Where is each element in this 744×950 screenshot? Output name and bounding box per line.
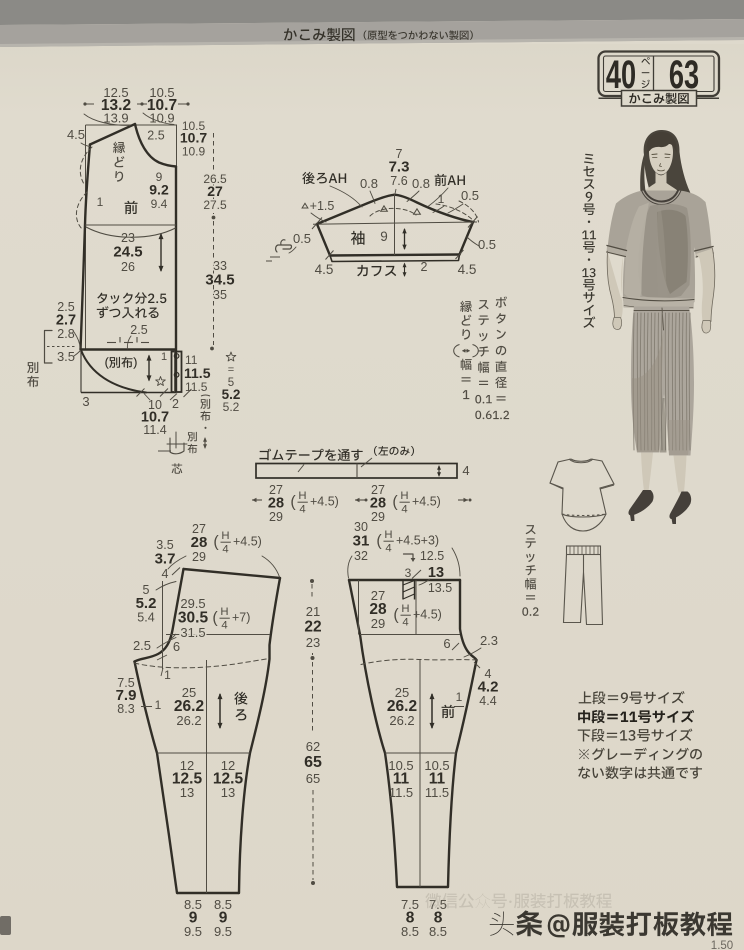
svg-text:1: 1: [155, 698, 162, 712]
svg-text:27: 27: [207, 183, 223, 199]
svg-text:4.5: 4.5: [67, 127, 85, 142]
svg-text:8.5: 8.5: [401, 924, 419, 939]
svg-text:13: 13: [180, 785, 194, 800]
svg-text:32: 32: [354, 549, 368, 563]
svg-text:13: 13: [221, 785, 235, 800]
svg-text:24.5: 24.5: [113, 244, 142, 261]
svg-text:29: 29: [269, 510, 283, 524]
svg-text:(: (: [212, 610, 218, 627]
svg-text:9.2: 9.2: [149, 182, 169, 198]
svg-text:4: 4: [299, 504, 305, 516]
svg-text:9: 9: [380, 229, 388, 244]
svg-text:7.3: 7.3: [389, 159, 410, 176]
svg-text:H: H: [298, 490, 306, 502]
svg-text:9.5: 9.5: [184, 924, 202, 939]
svg-text:11.5: 11.5: [184, 365, 211, 381]
svg-text:2.5: 2.5: [147, 129, 164, 143]
svg-text:6: 6: [173, 639, 180, 654]
svg-text:22: 22: [304, 619, 321, 636]
svg-text:4.5: 4.5: [458, 262, 477, 277]
svg-text:65: 65: [304, 754, 322, 771]
svg-text:8.5: 8.5: [429, 924, 447, 939]
svg-text:+1.5: +1.5: [310, 199, 335, 213]
svg-text:10.9: 10.9: [182, 144, 206, 158]
svg-text:2.3: 2.3: [480, 633, 498, 648]
svg-text:35: 35: [213, 288, 227, 302]
svg-text:29: 29: [371, 510, 385, 524]
svg-text:34.5: 34.5: [205, 272, 234, 289]
svg-text:(: (: [376, 533, 382, 550]
svg-text:7.6: 7.6: [390, 174, 407, 188]
svg-text:+4.5): +4.5): [412, 495, 441, 509]
svg-text:11.4: 11.4: [143, 423, 166, 437]
svg-text:5.4: 5.4: [137, 611, 154, 625]
svg-text:31: 31: [353, 533, 370, 550]
svg-text:2.8: 2.8: [57, 327, 74, 341]
svg-text:4: 4: [222, 544, 228, 556]
svg-text:6: 6: [443, 636, 450, 651]
svg-text:30.5: 30.5: [178, 610, 209, 627]
svg-text:4: 4: [402, 617, 408, 629]
svg-text:+4.5): +4.5): [233, 535, 262, 549]
svg-text:4: 4: [385, 543, 391, 555]
svg-text:21: 21: [306, 604, 320, 619]
svg-text:4: 4: [401, 504, 407, 516]
svg-text:4.2: 4.2: [478, 679, 499, 696]
svg-text:0.5: 0.5: [461, 188, 479, 203]
svg-text:11.5: 11.5: [389, 785, 413, 800]
svg-text:4: 4: [221, 620, 227, 632]
svg-text:26.2: 26.2: [389, 713, 414, 728]
svg-text:1: 1: [438, 192, 445, 206]
svg-text:10.7: 10.7: [180, 130, 207, 146]
svg-text:2: 2: [172, 397, 179, 411]
svg-text:8.3: 8.3: [117, 702, 134, 716]
svg-text:2: 2: [421, 260, 428, 274]
svg-text:3.5: 3.5: [57, 349, 75, 364]
svg-text:1: 1: [456, 690, 463, 704]
svg-text:1: 1: [97, 195, 104, 209]
svg-text:(: (: [393, 607, 399, 624]
svg-text:2.5: 2.5: [133, 638, 151, 653]
svg-text:+7): +7): [232, 611, 250, 625]
svg-text:27.5: 27.5: [203, 198, 227, 212]
svg-text:0.8: 0.8: [412, 176, 430, 191]
svg-text:2.5: 2.5: [130, 323, 147, 337]
svg-text:4: 4: [462, 463, 469, 478]
svg-text:4.4: 4.4: [479, 694, 496, 708]
svg-text:26.2: 26.2: [176, 713, 201, 728]
svg-text:H: H: [221, 530, 229, 542]
svg-text:4: 4: [162, 567, 169, 581]
svg-text:4.5: 4.5: [315, 262, 334, 277]
svg-text:+4.5+3): +4.5+3): [396, 534, 439, 548]
svg-text:10.9: 10.9: [149, 111, 174, 126]
svg-text:0.5: 0.5: [293, 231, 311, 246]
svg-text:(: (: [392, 494, 398, 511]
svg-text:1.50: 1.50: [711, 940, 733, 950]
svg-text:=: =: [228, 364, 234, 376]
svg-text:5.2: 5.2: [136, 595, 157, 612]
svg-text:(: (: [213, 534, 219, 551]
svg-text:11.5: 11.5: [425, 785, 449, 800]
svg-text:62: 62: [306, 739, 320, 754]
svg-text:H: H: [384, 529, 392, 541]
svg-text:12.5: 12.5: [420, 549, 444, 563]
svg-text:+4.5): +4.5): [310, 495, 339, 509]
svg-text:H: H: [220, 606, 228, 618]
svg-text:65: 65: [306, 771, 320, 786]
svg-text:29: 29: [371, 616, 385, 631]
svg-text:13.5: 13.5: [428, 581, 452, 595]
svg-text:29: 29: [192, 550, 206, 564]
svg-text:1: 1: [161, 351, 167, 363]
svg-text:0.5: 0.5: [478, 237, 496, 252]
svg-text:5.2: 5.2: [223, 400, 240, 414]
svg-text:(: (: [290, 494, 296, 511]
svg-text:26: 26: [121, 260, 135, 274]
svg-text:+4.5): +4.5): [413, 608, 442, 622]
svg-text:3: 3: [82, 394, 89, 409]
svg-text:1: 1: [164, 668, 171, 682]
svg-text:9.5: 9.5: [214, 924, 232, 939]
svg-text:H: H: [400, 490, 408, 502]
svg-text:H: H: [401, 603, 409, 615]
svg-text:9.4: 9.4: [151, 197, 168, 211]
svg-text:28: 28: [191, 534, 208, 551]
svg-text:0.8: 0.8: [360, 176, 378, 191]
svg-text:3: 3: [405, 566, 412, 580]
svg-text:13: 13: [428, 565, 444, 581]
svg-text:13.9: 13.9: [103, 111, 128, 126]
svg-text:23: 23: [306, 635, 320, 650]
svg-text:3.7: 3.7: [155, 551, 176, 568]
svg-text:31.5: 31.5: [180, 625, 205, 640]
